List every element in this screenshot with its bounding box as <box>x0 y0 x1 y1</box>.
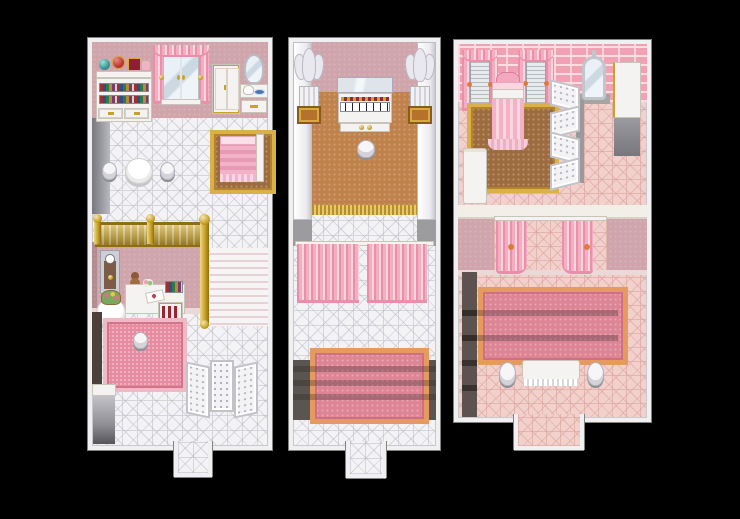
staircase[interactable] <box>210 248 268 326</box>
valance <box>518 50 554 62</box>
pink-parcel <box>142 61 150 70</box>
clock-face <box>105 254 115 264</box>
mirror-finial <box>592 50 596 58</box>
drawer-handle <box>134 112 140 115</box>
statue-figure <box>413 48 427 82</box>
post-finial <box>200 320 209 329</box>
wardrobe-door-right <box>227 68 239 110</box>
grandfather-clock <box>100 250 120 294</box>
book-row-top <box>99 83 149 92</box>
mirror-glass <box>582 56 606 100</box>
folding-screen <box>186 360 260 420</box>
window-shutters <box>526 58 546 104</box>
mirror-window <box>153 45 209 107</box>
tieback <box>584 244 590 250</box>
window-shutters <box>470 58 490 106</box>
south-exit-right[interactable] <box>514 414 584 450</box>
vanity-handle <box>250 105 258 108</box>
dark-wall-strip <box>92 312 102 390</box>
gray-cabinet <box>92 384 116 444</box>
piano-lid <box>337 77 393 93</box>
stool <box>499 362 516 386</box>
wardrobe <box>212 64 240 114</box>
tablecloth <box>522 360 580 380</box>
angel-statue-right <box>404 44 436 142</box>
bed-ruffle <box>220 174 256 182</box>
step <box>462 360 477 366</box>
screen-panel <box>210 360 234 412</box>
stool <box>587 362 604 386</box>
door-knob <box>182 75 185 80</box>
map-panel-grand-bedroom[interactable] <box>454 40 651 422</box>
teal-box <box>99 59 110 70</box>
carpet-fringe <box>312 205 417 215</box>
piano-trim <box>341 97 389 101</box>
angel-statue-left <box>293 44 325 142</box>
cloth-fringe <box>524 379 578 386</box>
bed-pillow <box>220 136 256 145</box>
tieback <box>159 75 164 80</box>
south-exit-middle[interactable] <box>346 441 386 478</box>
cabinet-body <box>93 396 115 444</box>
piano-pedal <box>367 125 372 130</box>
round-table <box>125 158 153 184</box>
bed-rail <box>256 134 264 182</box>
tieback <box>544 81 549 86</box>
step <box>462 385 477 391</box>
piano-stool <box>357 140 375 158</box>
wardrobe-knob <box>224 85 226 90</box>
standing-mirror <box>582 52 606 102</box>
pink-rug <box>103 318 187 392</box>
piano-pedal <box>359 125 364 130</box>
vanity-mirror <box>244 54 264 84</box>
stairwell[interactable] <box>462 272 477 417</box>
tieback <box>508 244 514 250</box>
bookshelf <box>96 78 152 122</box>
screen-panel <box>186 361 210 418</box>
tieback <box>467 82 472 87</box>
vanity <box>240 54 268 116</box>
divider-curtain-left <box>297 244 359 303</box>
step-edge <box>293 394 436 400</box>
window-sill <box>161 99 201 105</box>
bed-skirt <box>488 139 528 150</box>
piano <box>337 77 393 137</box>
step-edge <box>462 335 618 341</box>
map-panel-music-hall[interactable] <box>289 38 440 450</box>
blue-plate <box>254 89 265 95</box>
drawer-handle <box>108 112 114 115</box>
gift-shelf <box>96 54 152 78</box>
step-edge <box>293 366 436 372</box>
statue-pedestal <box>297 106 321 124</box>
cabinet-top <box>92 384 116 396</box>
console-table <box>463 148 487 204</box>
flower-basket <box>101 290 121 305</box>
divider-curtain-right <box>367 244 427 303</box>
door-knob <box>177 75 180 80</box>
flower-vase <box>143 279 153 287</box>
canopy-bed <box>488 72 528 150</box>
post-finial <box>146 214 155 223</box>
rug-stool <box>133 332 148 349</box>
statue-pedestal <box>408 106 432 124</box>
post-finial <box>93 214 102 223</box>
post-finial <box>199 214 210 225</box>
south-exit-left[interactable] <box>174 441 212 477</box>
book-row-bottom <box>99 95 149 104</box>
stair-rug <box>310 348 429 424</box>
bed-quilt <box>492 99 524 141</box>
wardrobe-lower <box>614 118 640 156</box>
teapot <box>243 85 254 95</box>
stair-railing <box>200 218 209 326</box>
screen-panel <box>234 361 258 418</box>
step-edge <box>462 310 618 316</box>
map-panel-dressing-room[interactable] <box>88 38 272 450</box>
cloth-table <box>522 360 580 386</box>
piano-base <box>340 123 390 132</box>
clock-pendulum <box>108 275 113 280</box>
statue-figure <box>302 48 316 82</box>
tieback <box>198 75 203 80</box>
bed-carpet <box>210 130 276 194</box>
wardrobe-upper <box>613 62 641 118</box>
skirting <box>458 270 647 275</box>
gift-box <box>128 58 140 70</box>
stool <box>160 162 175 180</box>
grand-rug <box>478 287 628 365</box>
piano-keys <box>340 102 390 112</box>
screen-panel <box>550 157 580 190</box>
valance <box>462 50 498 62</box>
desk-books <box>165 281 183 293</box>
game-screenshot-stage <box>0 0 740 519</box>
shelf-board <box>96 71 152 78</box>
stool <box>102 162 117 180</box>
red-ornament <box>112 56 125 69</box>
open-wardrobe <box>613 62 641 156</box>
zigzag-screen <box>550 83 582 187</box>
headboard <box>492 89 524 99</box>
valance <box>153 45 209 57</box>
step-edge <box>293 380 436 386</box>
